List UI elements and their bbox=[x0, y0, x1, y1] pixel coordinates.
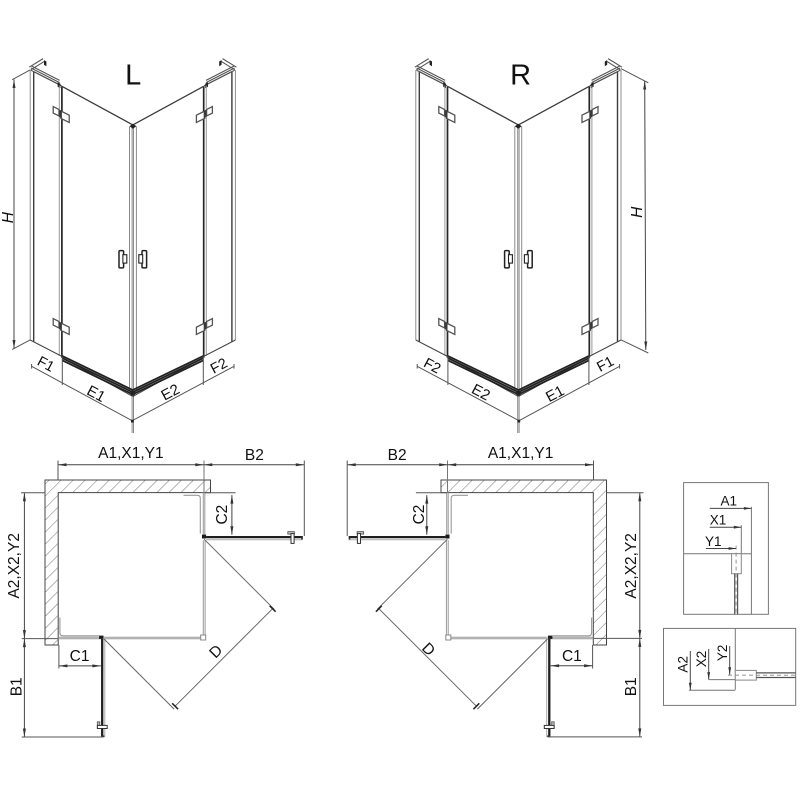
svg-text:Y2: Y2 bbox=[715, 645, 730, 662]
svg-text:B2: B2 bbox=[245, 447, 264, 464]
svg-text:H: H bbox=[0, 211, 17, 223]
svg-text:A1,X1,Y1: A1,X1,Y1 bbox=[98, 445, 164, 462]
svg-text:B1: B1 bbox=[8, 677, 25, 696]
svg-text:A1: A1 bbox=[720, 494, 737, 509]
svg-text:B1: B1 bbox=[623, 677, 640, 696]
svg-text:X1: X1 bbox=[710, 513, 727, 528]
svg-text:X2: X2 bbox=[694, 651, 709, 668]
svg-text:B2: B2 bbox=[388, 447, 407, 464]
svg-text:A2,X2,Y2: A2,X2,Y2 bbox=[623, 533, 640, 599]
svg-text:C2: C2 bbox=[411, 505, 428, 525]
svg-text:C2: C2 bbox=[214, 505, 231, 525]
svg-text:Y1: Y1 bbox=[705, 534, 722, 549]
svg-text:R: R bbox=[510, 59, 531, 91]
svg-text:A2: A2 bbox=[676, 656, 691, 673]
svg-text:C1: C1 bbox=[70, 648, 90, 665]
svg-text:A2,X2,Y2: A2,X2,Y2 bbox=[6, 533, 23, 599]
svg-text:A1,X1,Y1: A1,X1,Y1 bbox=[488, 445, 554, 462]
svg-text:L: L bbox=[125, 59, 141, 91]
svg-text:C1: C1 bbox=[562, 648, 582, 665]
svg-text:H: H bbox=[629, 206, 646, 218]
